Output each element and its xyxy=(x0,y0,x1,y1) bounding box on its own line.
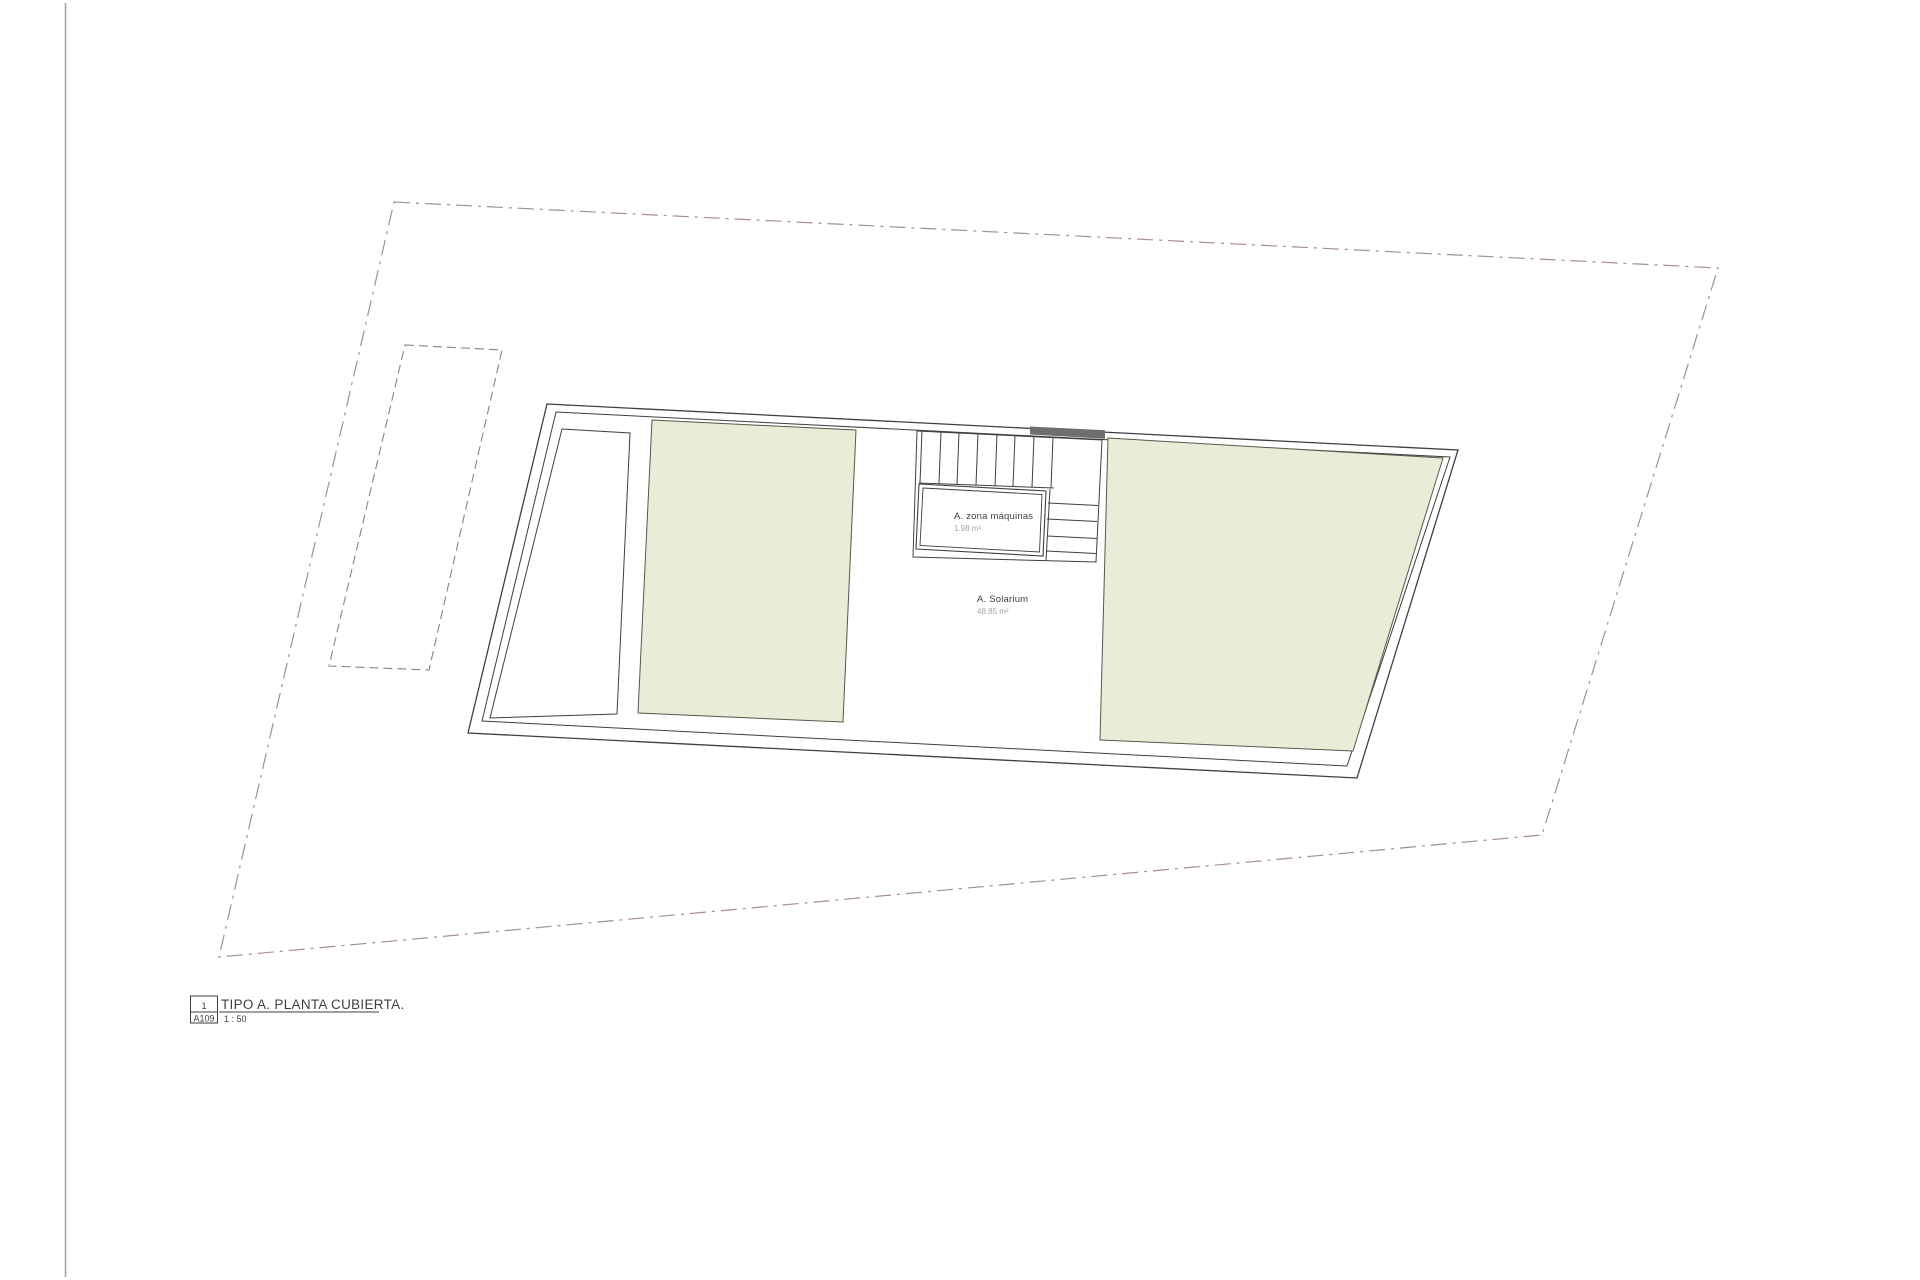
drawing-scale: 1 : 50 xyxy=(224,1014,247,1024)
title-block: 1 A109 TIPO A. PLANTA CUBIERTA. 1 : 50 xyxy=(191,996,405,1024)
machine-room: A. zona máquinas 1.98 m² xyxy=(916,484,1046,556)
machine-room-area: 1.98 m² xyxy=(954,524,981,533)
sheet-number: 1 xyxy=(201,1001,206,1011)
parking-space-outline xyxy=(329,345,502,670)
drawing-title: TIPO A. PLANTA CUBIERTA. xyxy=(221,997,405,1012)
drawing-sheet: A. zona máquinas 1.98 m² A. Solarium 48.… xyxy=(0,0,1920,1280)
roof-plan-canvas: A. zona máquinas 1.98 m² A. Solarium 48.… xyxy=(0,0,1920,1280)
green-roof-left xyxy=(638,420,856,722)
solarium-label: A. Solarium xyxy=(977,594,1028,605)
machine-room-label: A. zona máquinas xyxy=(954,511,1033,522)
solarium-area: 48.85 m² xyxy=(977,607,1009,616)
green-roof-right xyxy=(1100,438,1443,751)
sheet-code: A109 xyxy=(193,1014,214,1024)
